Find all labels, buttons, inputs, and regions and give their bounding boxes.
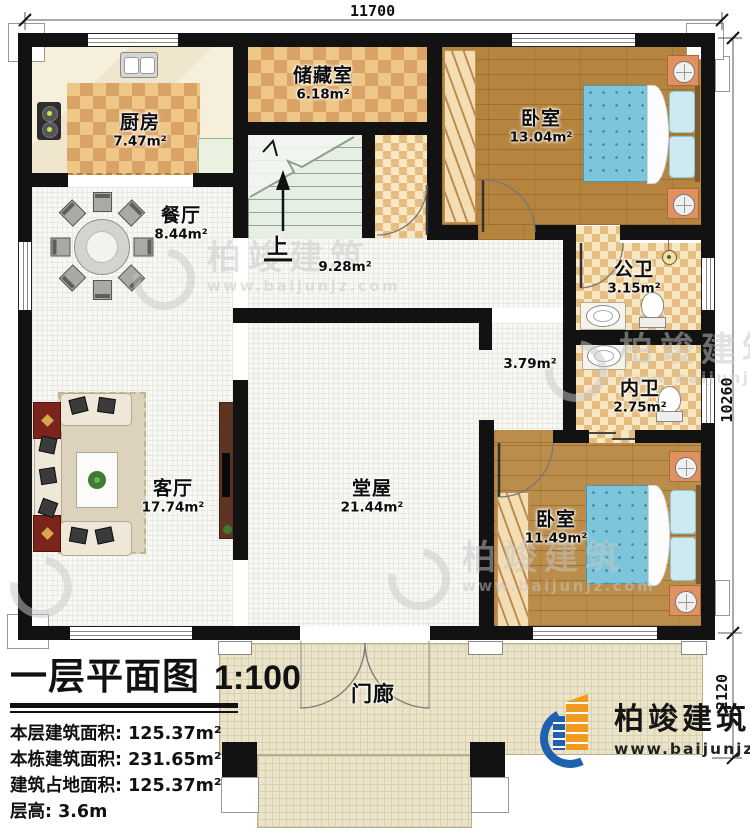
company-name: 柏竣建筑 xyxy=(614,694,750,738)
logo-building-orange xyxy=(566,694,588,750)
label-bedroom-bottom: 卧室11.49m² xyxy=(525,509,588,546)
label-bedroom-top: 卧室13.04m² xyxy=(510,108,573,145)
plan-scale: 1:100 xyxy=(214,659,301,698)
stat-row: 层高: 3.6m xyxy=(10,799,301,825)
label-passage-area: 3.79m² xyxy=(503,357,556,373)
plan-title: 一层平面图 xyxy=(10,646,200,700)
stats-list: 本层建筑面积: 125.37m² 本栋建筑面积: 231.65m² 建筑占地面积… xyxy=(10,721,301,825)
door-arc-vestibule xyxy=(377,185,427,235)
label-corridor-area: 9.28m² xyxy=(318,260,371,276)
label-storage: 储藏室6.18m² xyxy=(293,65,353,102)
label-kitchen: 厨房7.47m² xyxy=(113,112,166,149)
label-hall: 堂屋21.44m² xyxy=(341,478,404,515)
company-logo-icon xyxy=(540,688,604,764)
logo-building-blue xyxy=(553,716,565,750)
stat-row: 本层建筑面积: 125.37m² xyxy=(10,721,301,747)
stat-row: 本栋建筑面积: 231.65m² xyxy=(10,747,301,773)
company-website: www.baijunjz.com xyxy=(614,740,750,758)
label-dining: 餐厅8.44m² xyxy=(154,205,207,242)
label-inner-bath: 内卫2.75m² xyxy=(613,378,666,415)
floor-plan: 11700 10260 2120 厨房7.47m² 餐厅8.44m² 储藏室6.… xyxy=(0,0,750,836)
dim-right: 10260 xyxy=(718,377,736,422)
label-living: 客厅17.74m² xyxy=(142,478,205,515)
title-underline-thin xyxy=(10,711,238,713)
label-porch: 门廊 xyxy=(351,682,395,706)
dim-top: 11700 xyxy=(350,2,395,20)
title-block: 一层平面图 1:100 本层建筑面积: 125.37m² 本栋建筑面积: 231… xyxy=(10,646,301,825)
label-stairs-up: 上 xyxy=(264,234,292,261)
label-public-bath: 公卫3.15m² xyxy=(607,259,660,296)
title-underline xyxy=(10,703,238,708)
stat-row: 建筑占地面积: 125.37m² xyxy=(10,773,301,799)
company-logo: 柏竣建筑 www.baijunjz.com xyxy=(540,688,750,764)
door-arc-bedroom-top xyxy=(483,180,535,232)
door-arc-bedroom-bottom xyxy=(499,443,553,497)
